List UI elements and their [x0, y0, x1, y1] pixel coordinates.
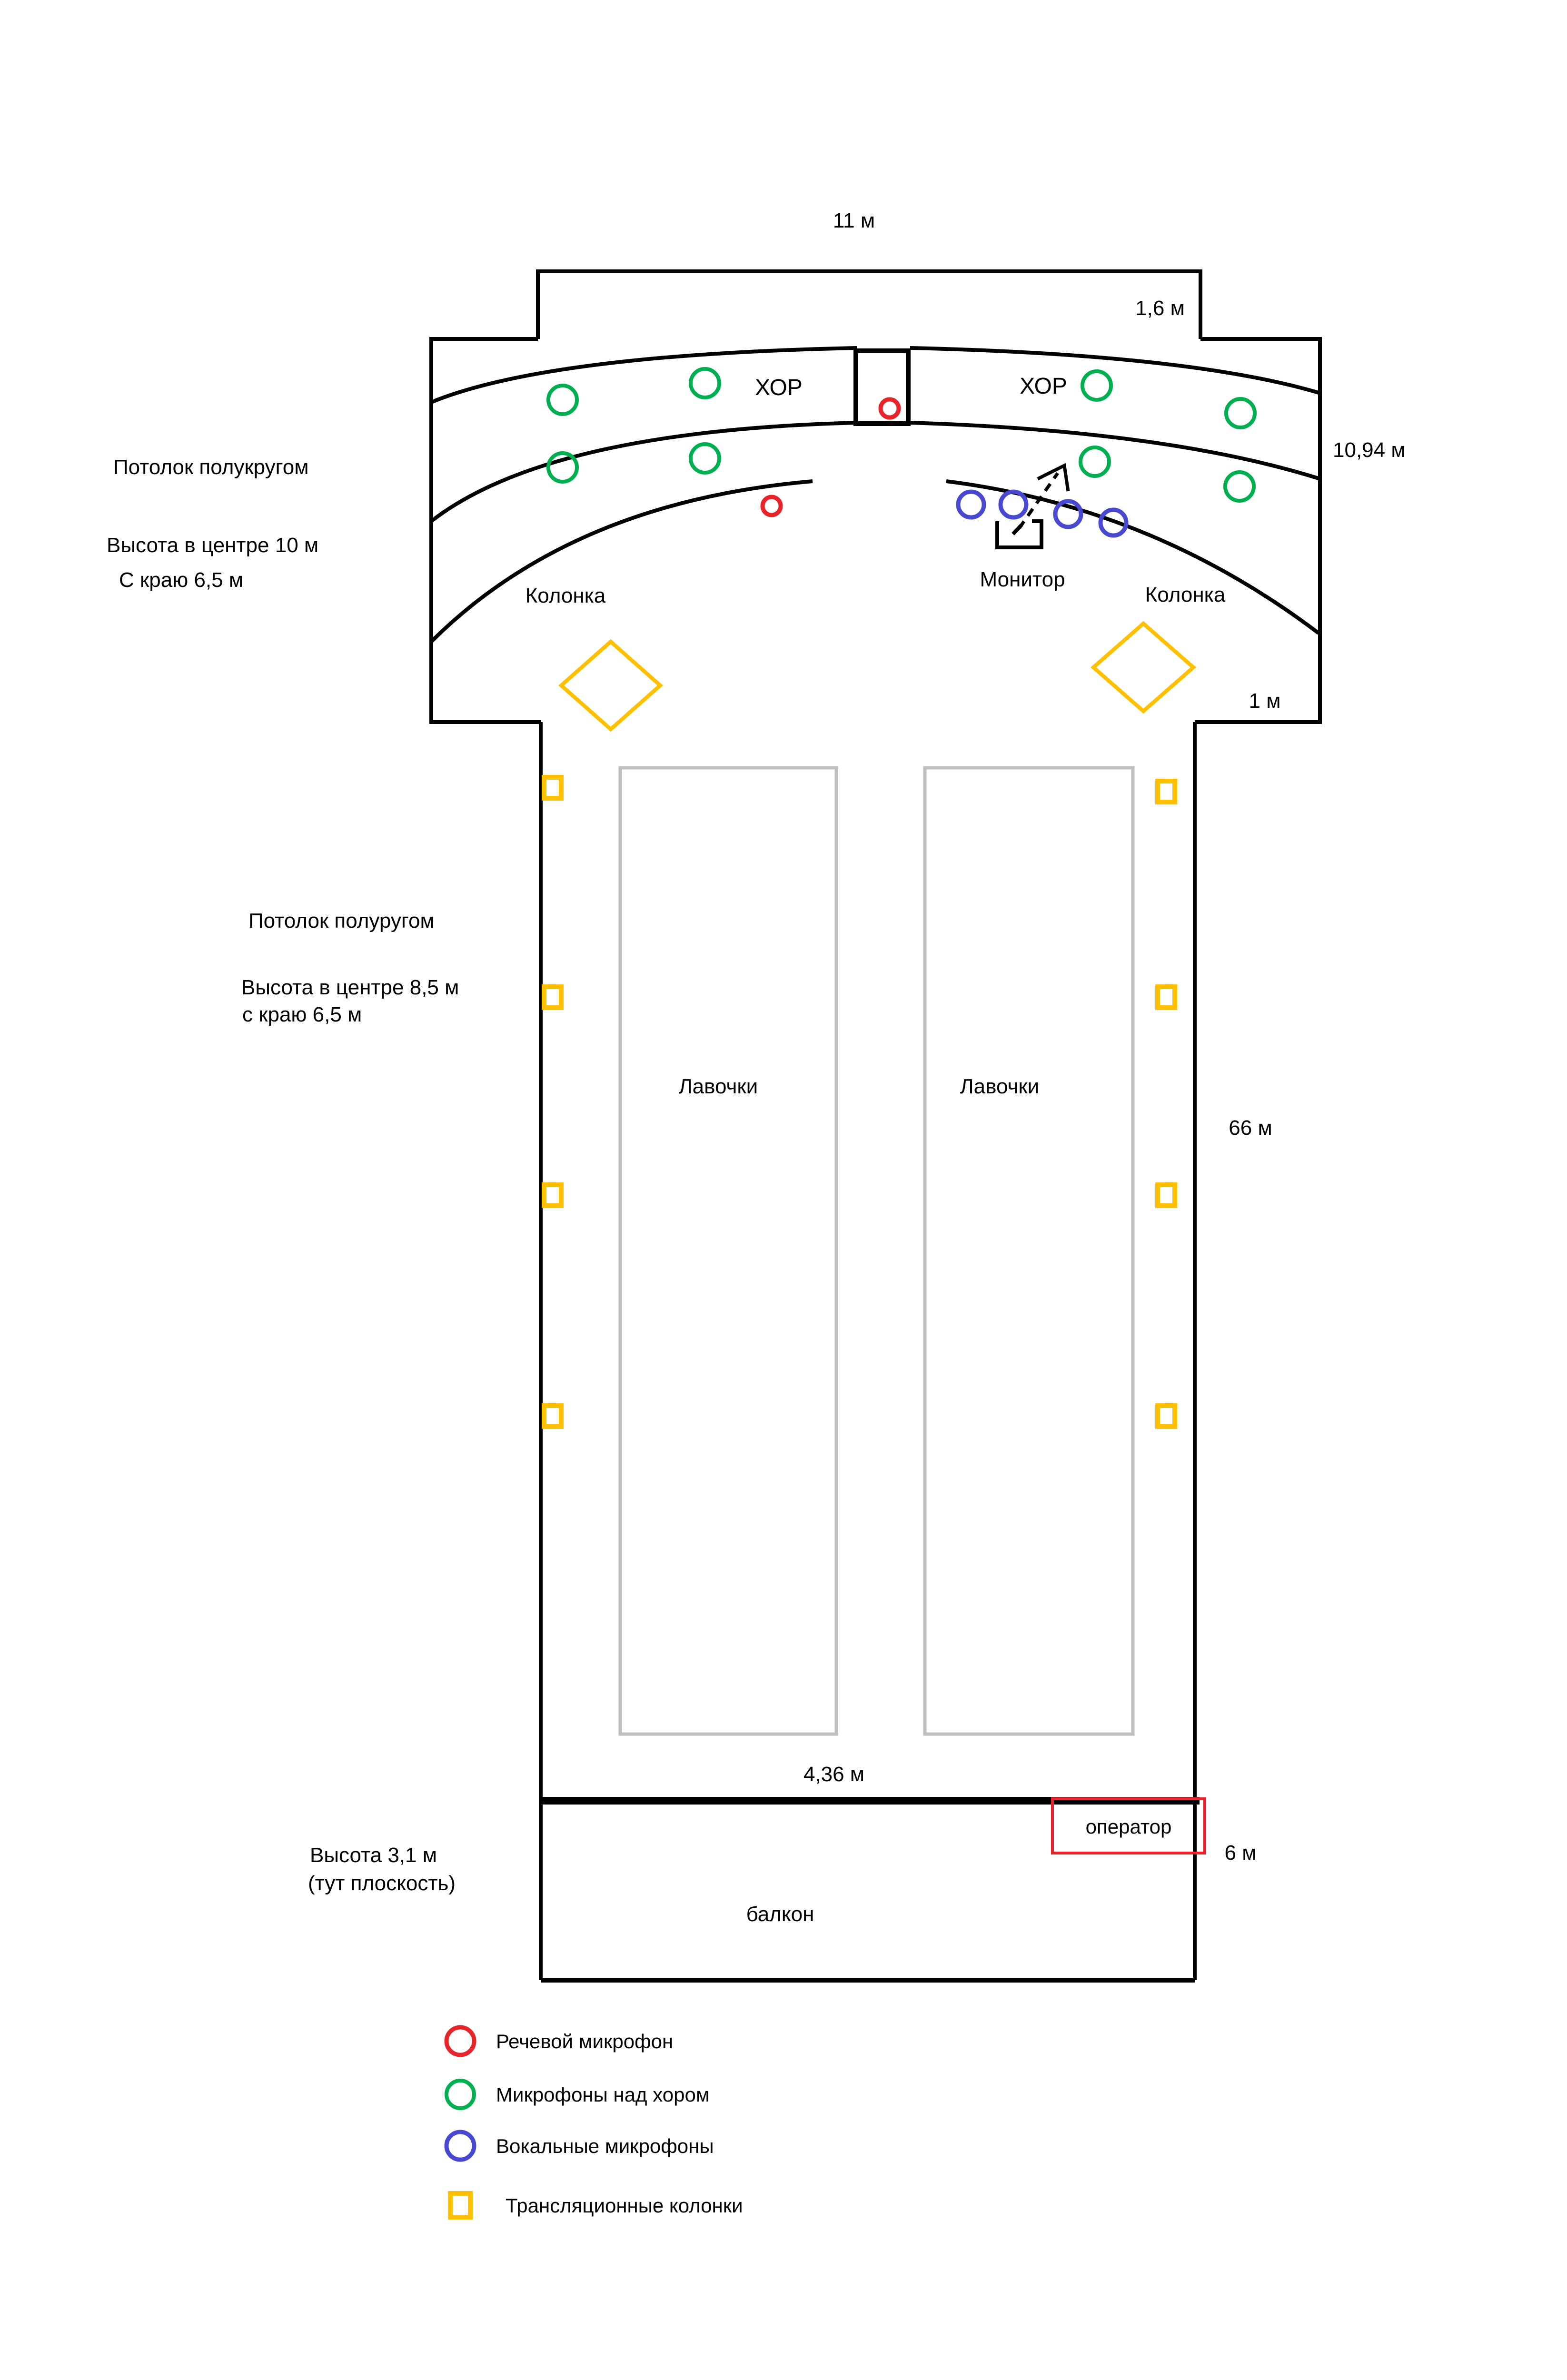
dim-speaker-offset: 1 м — [1249, 689, 1281, 713]
arc-2-left — [431, 423, 857, 521]
legend-yellow-square-icon — [450, 2193, 470, 2217]
nave-ceiling-note-1: Потолок полуругом — [248, 909, 435, 932]
hall-plan-page: 11 м 1,6 м ХОР ХОР 10,94 м Монитор Колон… — [0, 0, 1567, 2380]
broadcast-speakers — [544, 777, 1175, 1427]
choir-mic — [1081, 447, 1109, 476]
walls — [431, 271, 1320, 1980]
broadcast-speaker — [1158, 1185, 1175, 1206]
legend-icons — [446, 2027, 474, 2217]
broadcast-speaker — [544, 1406, 561, 1427]
dim-hall-length: 66 м — [1229, 1116, 1272, 1140]
broadcast-speaker — [1158, 1406, 1175, 1427]
broadcast-speaker — [544, 1185, 561, 1206]
benches — [620, 768, 1133, 1734]
bench-block-left — [620, 768, 836, 1734]
entrance-rect — [538, 271, 1200, 339]
dim-apse-depth: 10,94 м — [1333, 438, 1406, 462]
balcony-label: балкон — [746, 1903, 814, 1926]
benches-label-right: Лавочки — [960, 1075, 1039, 1098]
benches-label-left: Лавочки — [679, 1075, 758, 1098]
choir-mic — [691, 444, 719, 473]
broadcast-speaker — [1158, 987, 1175, 1008]
speaker-label-right: Колонка — [1145, 583, 1226, 606]
vocal-mic — [958, 492, 984, 517]
dim-top-width: 11 м — [833, 209, 875, 232]
arc-2-right — [910, 423, 1319, 478]
balcony-note-1: Высота 3,1 м — [310, 1844, 437, 1867]
choir-mic — [1226, 399, 1255, 427]
monitor-arrow-head — [1038, 466, 1068, 491]
apse-ceiling-note-2: Высота в центре 10 м — [107, 534, 318, 557]
speaker-diamond-right — [1093, 624, 1193, 711]
legend-label-vocal-mics: Вокальные микрофоны — [496, 2135, 714, 2157]
speech-mic-pulpit — [881, 399, 899, 417]
main-speakers — [561, 624, 1193, 729]
apse-ceiling-note-1: Потолок полукругом — [113, 456, 308, 479]
dim-balcony-depth: 6 м — [1225, 1841, 1257, 1864]
choir-label-right: ХОР — [1020, 374, 1067, 399]
choir-mic — [691, 369, 719, 397]
legend-label-speech-mic: Речевой микрофон — [496, 2030, 673, 2053]
broadcast-speaker — [544, 987, 561, 1008]
speaker-label-left: Колонка — [526, 584, 606, 607]
labels: 11 м 1,6 м ХОР ХОР 10,94 м Монитор Колон… — [107, 209, 1406, 2217]
nave-ceiling-note-3: с краю 6,5 м — [242, 1003, 362, 1026]
legend-label-choir-mics: Микрофоны над хором — [496, 2083, 710, 2106]
balcony-note-2: (тут плоскость) — [308, 1872, 456, 1895]
bench-block-right — [925, 768, 1133, 1734]
choir-mic — [1225, 472, 1254, 501]
choir-mic — [1082, 371, 1111, 400]
legend-green-circle-icon — [446, 2081, 474, 2108]
choir-mics — [548, 369, 1255, 501]
dim-aisle-width: 4,36 м — [803, 1763, 864, 1786]
speaker-diamond-left — [561, 642, 660, 729]
legend-blue-circle-icon — [446, 2132, 474, 2160]
choir-label-left: ХОР — [755, 375, 803, 400]
dim-entrance-offset: 1,6 м — [1135, 297, 1185, 320]
apse-right-wall — [1195, 339, 1320, 722]
arc-1-right — [910, 348, 1319, 393]
operator-label: оператор — [1086, 1815, 1172, 1838]
monitor-label: Монитор — [980, 568, 1065, 591]
legend-label-broadcast-speakers: Трансляционные колонки — [506, 2194, 743, 2217]
apse-ceiling-note-3: С краю 6,5 м — [119, 568, 243, 592]
nave-ceiling-note-2: Высота в центре 8,5 м — [241, 976, 459, 999]
broadcast-speaker — [544, 777, 561, 798]
legend-red-circle-icon — [446, 2027, 474, 2055]
speech-mic-floor — [763, 497, 781, 515]
arc-3-left — [431, 481, 813, 642]
broadcast-speaker — [1158, 781, 1175, 802]
vocal-mic — [1001, 492, 1026, 517]
hall-plan-diagram: 11 м 1,6 м ХОР ХОР 10,94 м Монитор Колон… — [0, 0, 1567, 2380]
choir-mic — [548, 386, 577, 414]
choir-mic — [548, 453, 577, 482]
